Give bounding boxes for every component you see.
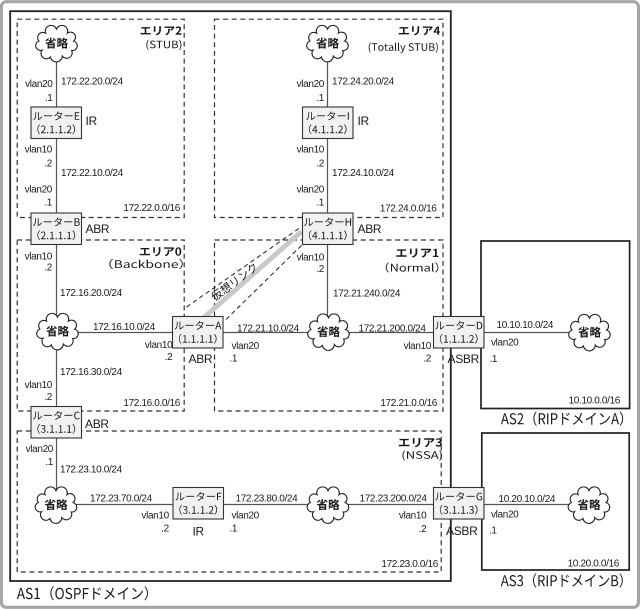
svg-text:.1: .1 [489, 526, 497, 537]
svg-text:vlan10: vlan10 [399, 511, 427, 522]
svg-text:vlan10: vlan10 [141, 511, 169, 522]
svg-text:.1: .1 [316, 198, 324, 209]
svg-text:.2: .2 [44, 263, 52, 274]
svg-text:ABR: ABR [189, 352, 213, 366]
svg-text:.2: .2 [423, 354, 431, 365]
svg-text:vlan20: vlan20 [26, 444, 54, 455]
svg-text:172.22.0.0/16: 172.22.0.0/16 [123, 203, 180, 214]
svg-text:vlan20: vlan20 [232, 341, 260, 352]
svg-text:172.23.10.0/24: 172.23.10.0/24 [60, 465, 123, 476]
svg-text:vlan20: vlan20 [297, 79, 325, 90]
svg-text:vlan10: vlan10 [25, 145, 53, 156]
svg-text:ABR: ABR [358, 222, 382, 236]
svg-text:vlan10: vlan10 [145, 340, 173, 351]
svg-text:.1: .1 [230, 354, 238, 365]
svg-text:172.21.240.0/24: 172.21.240.0/24 [333, 289, 401, 300]
svg-text:ASBR: ASBR [446, 524, 478, 538]
svg-text:.2: .2 [316, 159, 324, 170]
svg-text:IR: IR [358, 114, 370, 128]
svg-text:vlan20: vlan20 [491, 338, 519, 349]
svg-text:172.24.10.0/24: 172.24.10.0/24 [332, 168, 395, 179]
svg-text:.2: .2 [44, 392, 52, 403]
svg-text:ABR: ABR [86, 222, 110, 236]
svg-text:172.22.20.0/24: 172.22.20.0/24 [61, 77, 124, 88]
svg-text:vlan10: vlan10 [404, 341, 432, 352]
svg-text:172.23.0.0/16: 172.23.0.0/16 [381, 559, 438, 570]
svg-text:10.20.10.0/24: 10.20.10.0/24 [499, 494, 556, 505]
svg-text:.1: .1 [490, 354, 498, 365]
svg-text:vlan20: vlan20 [232, 511, 260, 522]
svg-text:vlan10: vlan10 [25, 380, 53, 391]
svg-text:172.16.30.0/24: 172.16.30.0/24 [60, 367, 123, 378]
svg-text:172.16.20.0/24: 172.16.20.0/24 [60, 288, 123, 299]
svg-text:.2: .2 [165, 352, 173, 363]
svg-text:172.24.20.0/24: 172.24.20.0/24 [332, 77, 395, 88]
svg-text:ASBR: ASBR [448, 352, 480, 366]
svg-text:.2: .2 [161, 524, 169, 535]
svg-text:.2: .2 [419, 524, 427, 535]
svg-text:vlan20: vlan20 [25, 79, 53, 90]
svg-text:.1: .1 [45, 93, 53, 104]
svg-text:10.20.0.0/16: 10.20.0.0/16 [568, 559, 620, 570]
svg-text:IR: IR [193, 525, 205, 539]
svg-text:vlan20: vlan20 [491, 510, 519, 521]
svg-text:.2: .2 [316, 264, 324, 275]
svg-text:.1: .1 [44, 198, 52, 209]
svg-text:.1: .1 [45, 457, 53, 468]
svg-text:vlan10: vlan10 [297, 253, 325, 264]
svg-text:172.23.70.0/24: 172.23.70.0/24 [90, 494, 153, 505]
svg-text:vlan20: vlan20 [297, 185, 325, 196]
svg-text:172.24.0.0/16: 172.24.0.0/16 [380, 203, 437, 214]
svg-text:ABR: ABR [85, 417, 109, 431]
svg-text:.2: .2 [44, 159, 52, 170]
svg-text:vlan10: vlan10 [297, 145, 325, 156]
svg-text:IR: IR [86, 114, 98, 128]
svg-text:172.23.80.0/24: 172.23.80.0/24 [236, 494, 299, 505]
svg-text:10.10.10.0/24: 10.10.10.0/24 [497, 320, 554, 331]
svg-text:vlan20: vlan20 [25, 185, 53, 196]
svg-text:.1: .1 [230, 524, 238, 535]
svg-text:172.16.10.0/24: 172.16.10.0/24 [93, 322, 156, 333]
svg-text:172.16.0.0/16: 172.16.0.0/16 [123, 398, 180, 409]
svg-text:172.21.10.0/24: 172.21.10.0/24 [237, 324, 300, 335]
svg-text:172.21.0.0/16: 172.21.0.0/16 [380, 398, 437, 409]
svg-text:10.10.0.0/16: 10.10.0.0/16 [569, 396, 621, 407]
svg-text:.1: .1 [316, 93, 324, 104]
svg-text:172.22.10.0/24: 172.22.10.0/24 [61, 168, 124, 179]
svg-text:vlan10: vlan10 [25, 252, 53, 263]
svg-text:172.21.200.0/24: 172.21.200.0/24 [359, 324, 427, 335]
svg-text:172.23.200.0/24: 172.23.200.0/24 [360, 494, 428, 505]
